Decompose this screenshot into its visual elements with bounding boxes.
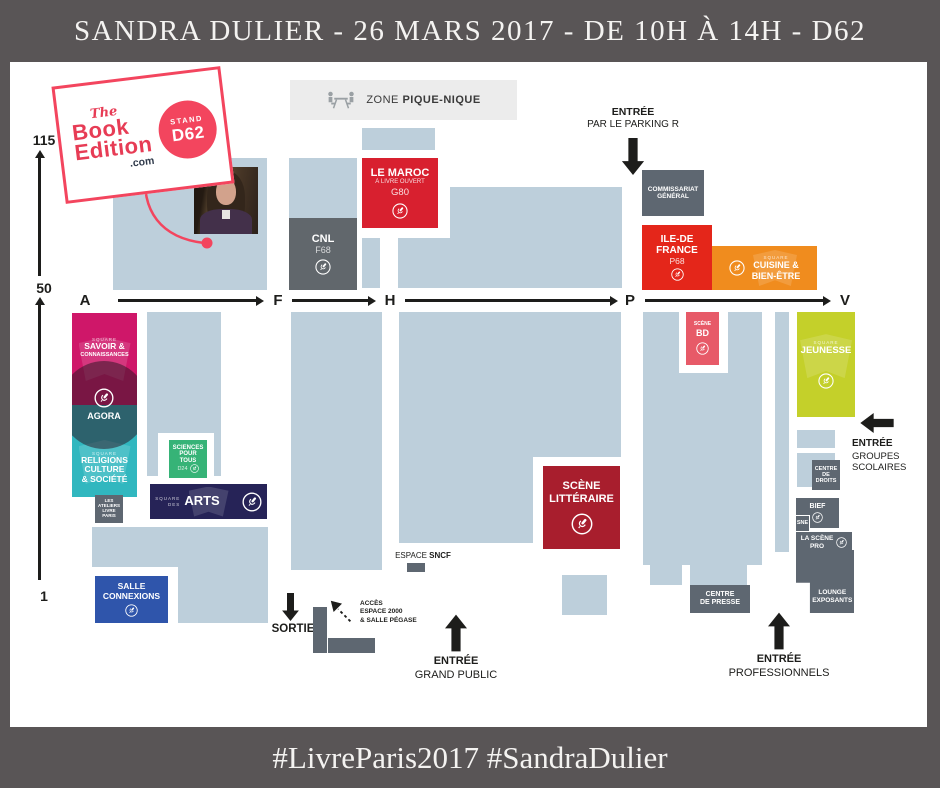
stand-column-savoir-religions: SQUARE SAVOIR & CONNAISSANCES SQUARE REL… (72, 313, 137, 497)
stand-title2: LITTÉRAIRE (549, 493, 614, 506)
stand-title2: GÉNÉRAL (657, 193, 689, 200)
axis-letter-v: V (837, 292, 853, 309)
axis-letter-a: A (77, 292, 93, 309)
stand-badge-code: D62 (171, 122, 206, 146)
microphone-icon (836, 537, 847, 548)
hall-block (289, 158, 357, 218)
microphone-icon (818, 373, 834, 389)
axis-arrow-up (38, 305, 41, 580)
microphone-icon (812, 512, 823, 523)
stand-title: ILE-DE (661, 234, 694, 246)
stand-cnl: CNL F68 (289, 218, 357, 290)
stand-title: SCÈNE (563, 480, 601, 493)
hall-block (291, 312, 382, 570)
picnic-label: ZONE PIQUE-NIQUE (366, 94, 480, 106)
stand-salle-connexions: SALLE CONNEXIONS (95, 576, 168, 623)
hall-block (562, 575, 607, 615)
axis-letter-f: F (270, 292, 286, 309)
acces-espace-2000-label: ACCÈS ESPACE 2000 & SALLE PÉGASE (360, 600, 440, 625)
exit-structure (328, 638, 375, 653)
hall-block (690, 565, 747, 585)
axis-label-1: 1 (26, 588, 62, 604)
stand-title: CENTRE (706, 591, 735, 599)
stand-title2: DE PRESSE (700, 599, 740, 607)
stand-scene-litteraire: SCÈNE LITTÉRAIRE (543, 466, 620, 549)
entrance-title: ENTRÉE (852, 438, 927, 451)
stand-title: ARTS (184, 494, 219, 509)
picnic-prefix: ZONE (366, 94, 402, 106)
stand-square-label2: DES (155, 502, 180, 507)
entrance-groupes-scolaires-label: ENTRÉE GROUPES SCOLAIRES (852, 438, 927, 474)
header-banner: SANDRA DULIER - 26 MARS 2017 - DE 10H À … (0, 0, 940, 62)
microphone-icon (392, 203, 408, 219)
thebookedition-logo: The Book Edition .com (70, 101, 156, 176)
stand-sne: SNE (795, 515, 810, 532)
entrance-title: ENTRÉE (699, 653, 859, 667)
stand-square-des-arts: SQUARE DES ARTS (150, 484, 267, 519)
dashed-arrow-up-left-icon (328, 598, 356, 626)
axis-arrow-right (645, 299, 823, 302)
stand-title2: EXPOSANTS (811, 597, 855, 605)
microphone-icon (242, 492, 262, 512)
stand-title: CNL (312, 233, 335, 246)
entrance-professionnels-label: ENTRÉE PROFESSIONNELS (699, 653, 859, 681)
microphone-icon (125, 604, 138, 617)
stand-line: PARIS (102, 514, 115, 519)
stand-title2: BIEN-ÊTRE (752, 271, 801, 281)
hall-block (398, 238, 450, 288)
stand-square-jeunesse: SQUARE JEUNESSE (797, 312, 855, 417)
stand-title2: CONNEXIONS (103, 592, 160, 602)
sncf-prefix: ESPACE (395, 551, 429, 560)
stand-title: AGORA (87, 411, 121, 421)
zone-pique-nique: ZONE PIQUE-NIQUE (290, 80, 517, 120)
stand-title: CUISINE & (752, 260, 801, 270)
hall-block (362, 238, 380, 288)
entrance-title: ENTRÉE (558, 106, 708, 119)
stand-title: COMMISSARIAT (648, 186, 698, 193)
hall-block (650, 563, 682, 585)
arrow-up-icon (445, 613, 467, 653)
picnic-name: PIQUE-NIQUE (402, 94, 480, 106)
microphone-icon (571, 513, 593, 535)
stand-centre-de-droits: CENTRE DE DROITS (812, 460, 840, 490)
stand-line: POUR (179, 451, 196, 458)
microphone-icon (190, 464, 199, 473)
microphone-icon (315, 259, 331, 275)
stand-line: TOUS (180, 458, 197, 465)
hashtags: #LivreParis2017 #SandraDulier (272, 740, 667, 776)
entrance-subtitle: GRAND PUBLIC (376, 669, 536, 683)
espace-sncf-block (407, 563, 425, 572)
stand-badge: STAND D62 (155, 97, 220, 162)
stand-code: F68 (315, 245, 331, 255)
page-title: SANDRA DULIER - 26 MARS 2017 - DE 10H À … (74, 15, 866, 48)
microphone-icon (94, 388, 114, 408)
stand-code: P68 (669, 257, 684, 267)
stand-title2: BD (696, 328, 709, 338)
entrance-subtitle: GROUPES (852, 451, 927, 463)
stand-commissariat-general: COMMISSARIAT GÉNÉRAL (642, 170, 704, 216)
entrance-title: ENTRÉE (376, 655, 536, 669)
floor-plan: ZONE PIQUE-NIQUE 115 50 1 A F H P V LE M… (10, 62, 927, 727)
axis-arrow-right (405, 299, 610, 302)
stand-title: LE MAROC (371, 167, 430, 180)
stand-line: DROITS (816, 478, 837, 484)
stand-ateliers-livre-paris: LES ATELIERS LIVRE PARIS (95, 495, 123, 523)
stand-title: BIEF (810, 503, 826, 511)
stand-title2: CONNAISSANCES (80, 352, 128, 358)
acces-line: & SALLE PÉGASE (360, 617, 440, 625)
microphone-icon (696, 342, 709, 355)
stand-ile-de-france: ILE-DE FRANCE P68 (642, 225, 712, 290)
stand-title: JEUNESSE (801, 346, 852, 357)
stand-square-label: SQUARE (752, 255, 801, 260)
stand-cuisine-bien-etre: SQUARE CUISINE & BIEN-ÊTRE (712, 246, 817, 290)
stand-title2: PRO (801, 543, 834, 550)
stand-title2: FRANCE (656, 245, 698, 257)
axis-letter-p: P (622, 292, 638, 309)
espace-sncf-label: ESPACE SNCF (380, 551, 466, 560)
stand-title3: & SOCIÉTÉ (82, 475, 128, 485)
stand-line: SCIENCES (173, 445, 204, 452)
axis-letter-h: H (382, 292, 398, 309)
stand-scene-bd: SCÈNE BD (686, 312, 719, 365)
stand-title: LOUNGE (811, 589, 855, 597)
hall-block (775, 312, 789, 552)
axis-arrow-right (292, 299, 368, 302)
stand-le-maroc: LE MAROC À LIVRE OUVERT G80 (362, 158, 438, 228)
acces-line: ESPACE 2000 (360, 608, 440, 616)
stand-code: G80 (391, 188, 409, 199)
stand-title: SAVOIR & (84, 342, 124, 352)
acces-line: ACCÈS (360, 600, 440, 608)
stand-la-scene-pro: LA SCÈNE PRO (796, 532, 852, 553)
thebookedition-logo-card: The Book Edition .com STAND D62 (51, 66, 234, 204)
axis-arrow-up (38, 158, 41, 276)
hall-block (450, 187, 622, 288)
arrow-left-icon (860, 413, 894, 433)
stand-lounge-exposants: LOUNGE EXPOSANTS (796, 550, 854, 613)
entrance-subtitle: PROFESSIONNELS (699, 667, 859, 681)
stand-sciences-pour-tous: SCIENCES POUR TOUS D24 (169, 440, 207, 478)
stand-title: LA SCÈNE (801, 535, 834, 542)
microphone-icon (671, 268, 684, 281)
axis-label-50: 50 (26, 280, 62, 296)
footer-banner: #LivreParis2017 #SandraDulier (0, 727, 940, 788)
sncf-name: SNCF (429, 551, 451, 560)
stand-code: D24 (177, 466, 187, 472)
exit-structure (313, 607, 327, 653)
axis-arrow-right (118, 299, 256, 302)
arrow-down-icon (282, 593, 299, 621)
stand-subtitle: À LIVRE OUVERT (375, 179, 425, 186)
entrance-grand-public-label: ENTRÉE GRAND PUBLIC (376, 655, 536, 683)
stand-title: SNE (797, 520, 808, 526)
stand-centre-de-presse: CENTRE DE PRESSE (690, 585, 750, 613)
microphone-icon (729, 260, 745, 276)
hall-block (797, 430, 835, 448)
entrance-parking-label: ENTRÉE PAR LE PARKING R (558, 106, 708, 132)
photo-collar (222, 210, 230, 219)
arrow-up-icon (768, 611, 790, 651)
entrance-subtitle: PAR LE PARKING R (558, 119, 708, 132)
stand-agora: AGORA (72, 361, 137, 449)
entrance-subtitle2: SCOLAIRES (852, 462, 927, 474)
hall-block (362, 128, 435, 150)
picnic-table-icon (326, 90, 356, 110)
